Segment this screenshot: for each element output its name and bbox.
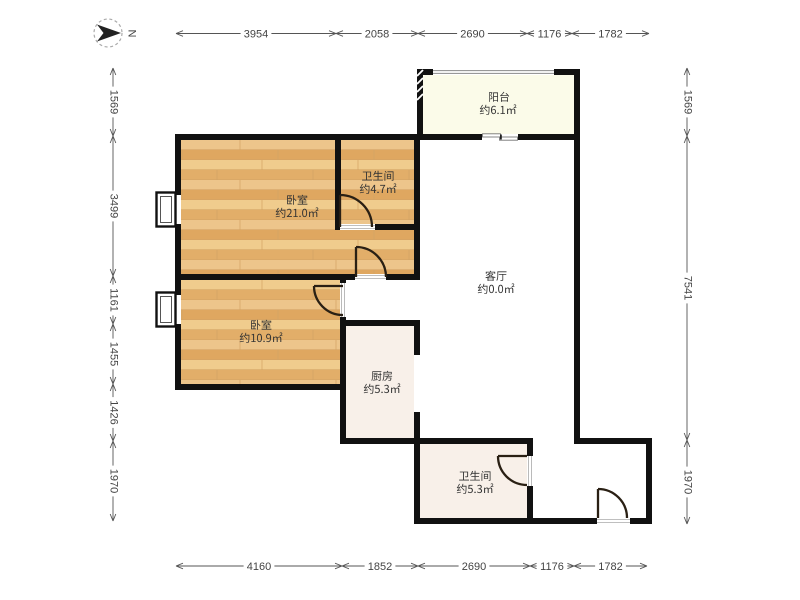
svg-text:3954: 3954 xyxy=(244,28,268,40)
svg-text:1455: 1455 xyxy=(108,342,120,366)
svg-text:1569: 1569 xyxy=(682,90,694,114)
svg-text:2690: 2690 xyxy=(462,561,486,573)
svg-text:1782: 1782 xyxy=(598,28,622,40)
svg-text:2690: 2690 xyxy=(460,28,484,40)
svg-text:N: N xyxy=(126,30,138,38)
svg-text:1426: 1426 xyxy=(108,400,120,424)
svg-text:1970: 1970 xyxy=(682,470,694,494)
svg-text:1569: 1569 xyxy=(108,90,120,114)
svg-text:4160: 4160 xyxy=(247,561,271,573)
svg-text:7541: 7541 xyxy=(682,276,694,300)
svg-text:1161: 1161 xyxy=(108,288,120,312)
svg-text:1852: 1852 xyxy=(368,561,392,573)
svg-text:3499: 3499 xyxy=(108,194,120,218)
svg-text:1176: 1176 xyxy=(540,561,564,573)
svg-text:1176: 1176 xyxy=(538,28,562,40)
svg-text:1970: 1970 xyxy=(108,469,120,493)
svg-text:1782: 1782 xyxy=(598,561,622,573)
svg-text:2058: 2058 xyxy=(365,28,389,40)
